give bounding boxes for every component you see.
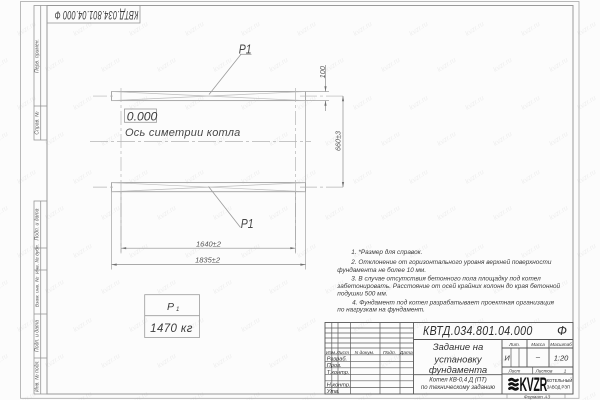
svg-text:по техническому заданию: по техническому заданию [421, 385, 496, 391]
svg-text:1: 1 [564, 369, 567, 374]
svg-text:Р1: Р1 [239, 43, 252, 57]
svg-text:Перв. примен.: Перв. примен. [34, 39, 40, 73]
svg-text:1: 1 [176, 307, 179, 313]
svg-text:2. Отклонение от горизонтально: 2. Отклонение от горизонтального уровня … [350, 258, 552, 266]
svg-text:3. В случае отсутствия бетонно: 3. В случае отсутствия бетонного пола пл… [351, 275, 541, 283]
svg-text:забетонировать. Расстояние от: забетонировать. Расстояние от осей крайн… [336, 282, 560, 290]
svg-text:Т.контр.: Т.контр. [327, 370, 350, 376]
svg-text:фундамента не более 10 мм.: фундамента не более 10 мм. [337, 266, 426, 274]
svg-text:1640±2: 1640±2 [196, 240, 222, 249]
svg-text:ЗАВОД РЭП: ЗАВОД РЭП [547, 385, 570, 390]
svg-text:по нагрузкам на фундамент.: по нагрузкам на фундамент. [337, 305, 425, 313]
svg-text:N докум.: N докум. [355, 350, 375, 356]
svg-text:КВТД.034.801.04.000: КВТД.034.801.04.000 [423, 324, 533, 338]
svg-text:Утв.: Утв. [326, 389, 340, 395]
svg-text:Подп. и дата: Подп. и дата [34, 320, 40, 352]
svg-text:1:20: 1:20 [554, 354, 569, 363]
svg-text:Р: Р [167, 301, 174, 313]
svg-text:Р1: Р1 [241, 217, 254, 231]
svg-text:установку: установку [433, 354, 483, 365]
svg-text:Масса: Масса [531, 342, 545, 347]
svg-text:фундамента: фундамента [429, 365, 487, 376]
svg-text:Н.контр.: Н.контр. [327, 383, 351, 389]
svg-text:Ось симетрии котла: Ось симетрии котла [125, 127, 241, 139]
svg-text:100: 100 [318, 65, 327, 78]
svg-text:660±3: 660±3 [334, 131, 343, 151]
svg-text:подушки 500 мм.: подушки 500 мм. [337, 290, 387, 298]
svg-text:Котел КВ-0,4 Д (ПТ): Котел КВ-0,4 Д (ПТ) [429, 378, 487, 384]
svg-text:Масштаб: Масштаб [550, 342, 572, 347]
svg-text:КОТЕЛЬНЫЙ: КОТЕЛЬНЫЙ [547, 378, 573, 383]
svg-text:Дата: Дата [399, 350, 413, 356]
svg-text:Ф: Ф [557, 324, 567, 338]
svg-text:1470 кг: 1470 кг [150, 323, 193, 335]
svg-text:Листов: Листов [535, 369, 553, 374]
svg-text:Пров.: Пров. [327, 363, 342, 369]
svg-text:Подп.: Подп. [383, 350, 396, 356]
svg-text:Инв. № дубл.: Инв. № дубл. [34, 244, 40, 274]
svg-text:Формат А3: Формат А3 [524, 394, 551, 400]
svg-text:Лит.: Лит. [508, 342, 520, 347]
svg-text:Подп. и дата: Подп. и дата [34, 208, 40, 240]
svg-text:КВТД.034.801.04.000 Ф: КВТД.034.801.04.000 Ф [54, 8, 138, 21]
svg-text:Изм.Лист: Изм.Лист [326, 350, 349, 356]
svg-text:4. Фундамент под котел разраба: 4. Фундамент под котел разрабатывает про… [352, 298, 554, 306]
svg-text:И: И [504, 354, 510, 363]
svg-text:KVZR: KVZR [520, 375, 548, 396]
svg-text:0.000: 0.000 [127, 110, 158, 124]
svg-text:Лист: Лист [507, 369, 520, 374]
svg-text:1835±2: 1835±2 [195, 255, 221, 264]
svg-text:1. *Размер для справок.: 1. *Размер для справок. [351, 248, 422, 256]
svg-text:–: – [535, 352, 541, 361]
svg-text:Справ. №: Справ. № [34, 111, 40, 135]
svg-text:Разраб.: Разраб. [327, 357, 347, 363]
svg-text:Взам. инв. №: Взам. инв. № [34, 277, 40, 307]
svg-text:Инв. № подл.: Инв. № подл. [34, 360, 40, 392]
svg-text:Задание на: Задание на [433, 342, 484, 353]
